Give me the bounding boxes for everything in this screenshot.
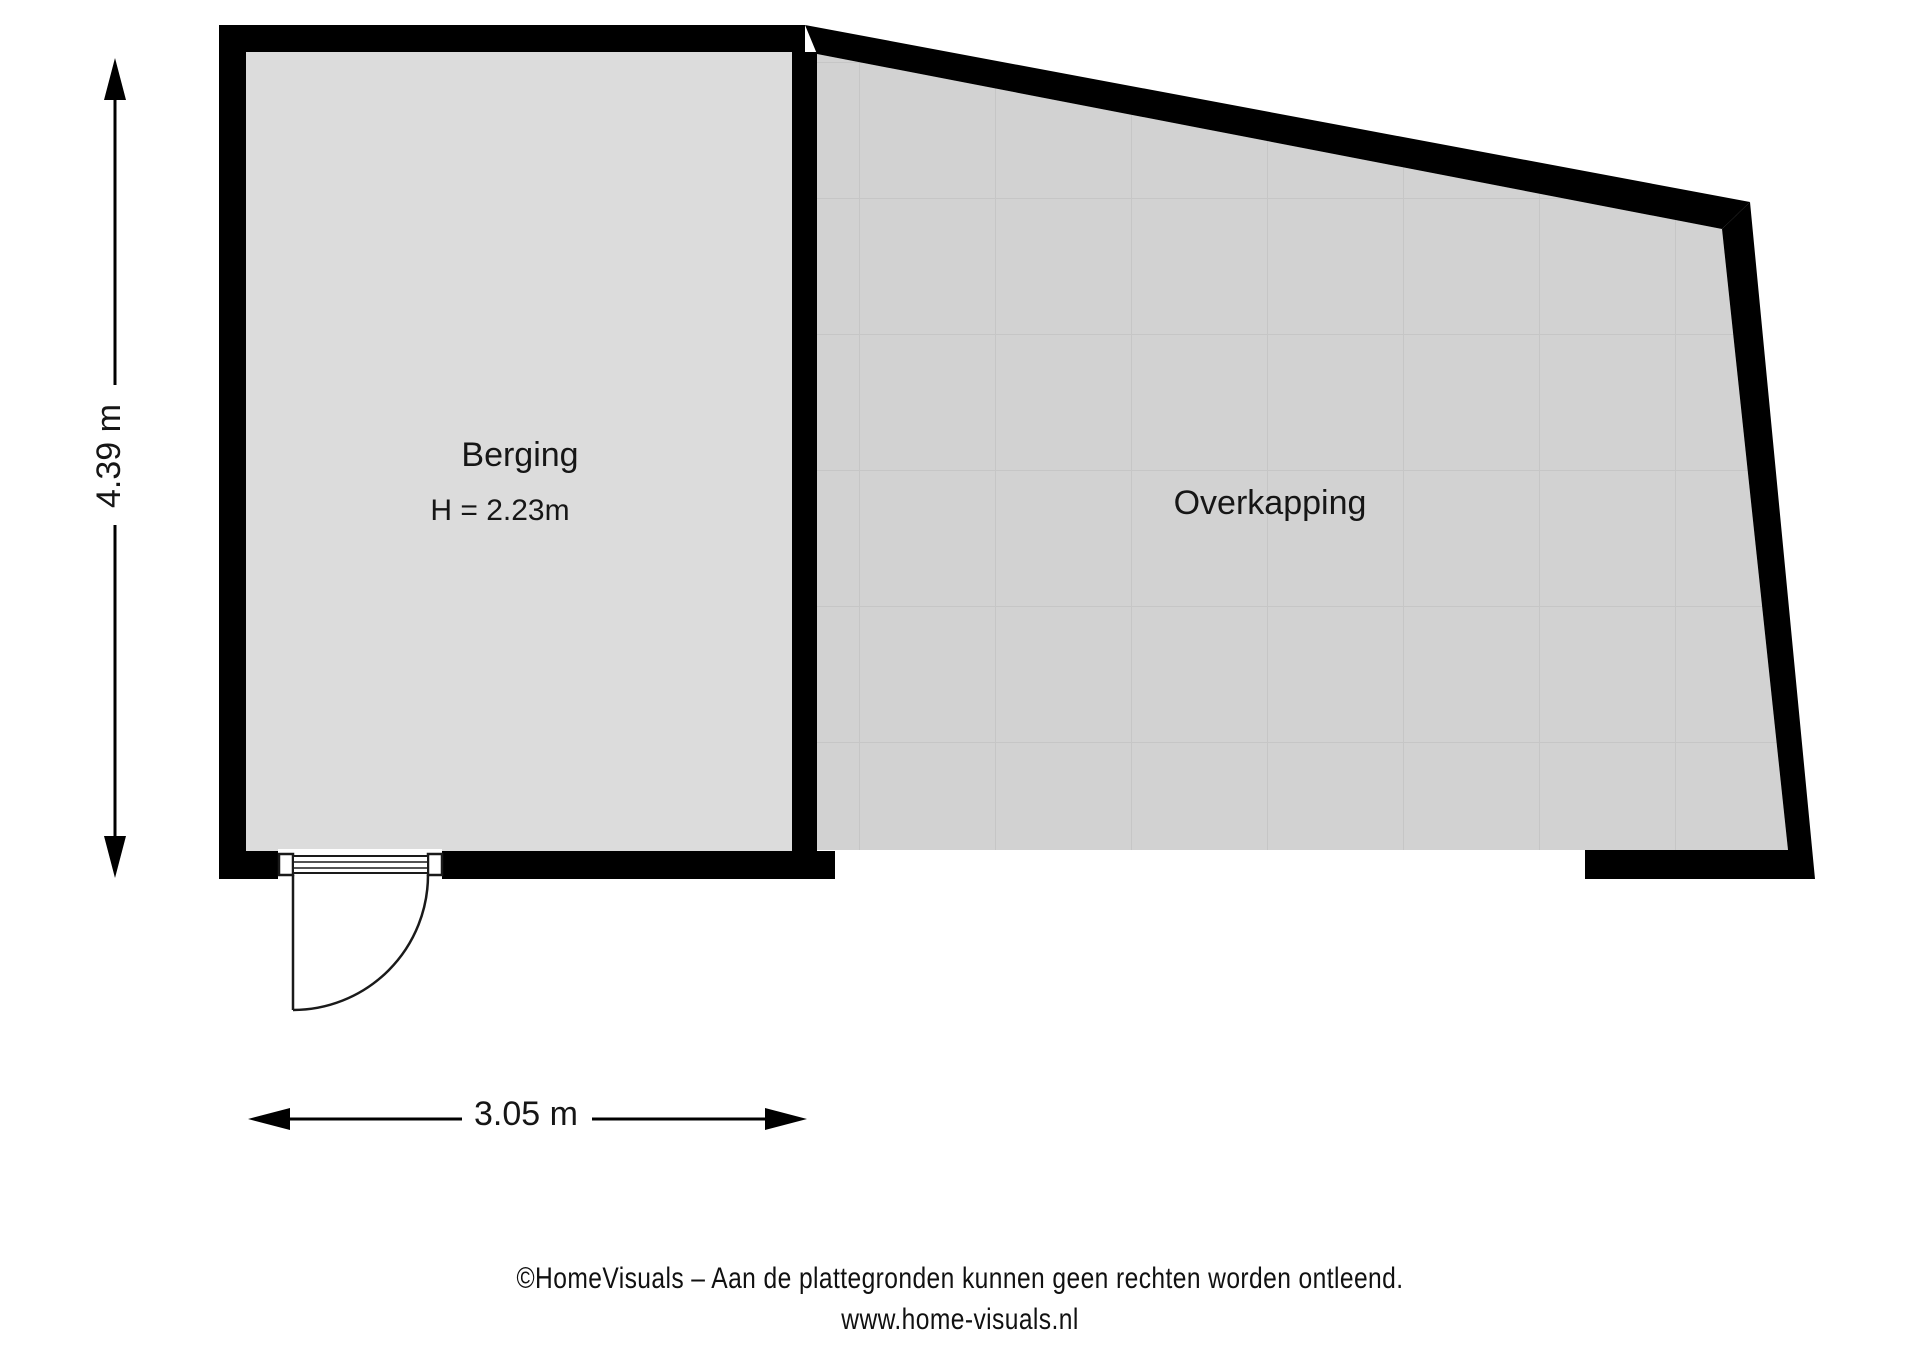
door-post-right	[428, 854, 442, 875]
door-threshold	[293, 856, 428, 873]
overkapping-tile-pattern	[817, 54, 1788, 850]
floorplan-page: Berging H = 2.23m Overkapping 4.39 m 3.0…	[0, 0, 1920, 1358]
floor-plan-svg	[0, 0, 1920, 1358]
door-post-left	[279, 854, 293, 875]
dimension-vertical-label: 4.39 m	[91, 356, 131, 556]
footer-copyright: ©HomeVisuals – Aan de plattegronden kunn…	[173, 1262, 1747, 1296]
overkapping-label: Overkapping	[1070, 485, 1470, 522]
wall-top	[219, 25, 805, 52]
door-swing-arc	[293, 875, 428, 1010]
wall-bottom-left-of-door	[219, 851, 278, 879]
wall-divider	[792, 52, 817, 879]
wall-bottom-right-of-door	[442, 851, 835, 879]
dimension-horizontal-label: 3.05 m	[326, 1096, 726, 1133]
dimension-arrow-up-icon	[104, 58, 126, 100]
footer-website: www.home-visuals.nl	[173, 1303, 1747, 1337]
dimension-arrow-left-icon	[248, 1108, 290, 1130]
dimension-arrow-down-icon	[104, 836, 126, 878]
wall-left	[219, 25, 246, 879]
berging-label: Berging	[320, 437, 720, 474]
berging-height-label: H = 2.23m	[300, 494, 700, 527]
dimension-arrow-right-icon	[765, 1108, 807, 1130]
